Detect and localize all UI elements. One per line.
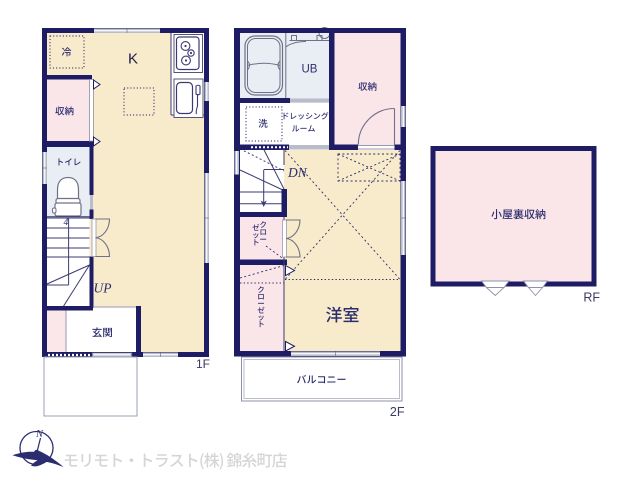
svg-text:K: K [128,51,138,68]
svg-text:4: 4 [64,218,69,228]
svg-text:UP: UP [94,281,112,296]
svg-text:UB: UB [302,64,318,76]
svg-text:DN: DN [287,165,308,180]
svg-text:1F: 1F [196,357,210,371]
svg-text:N: N [35,429,44,440]
svg-text:RF: RF [583,291,600,305]
svg-text:2F: 2F [390,405,405,419]
